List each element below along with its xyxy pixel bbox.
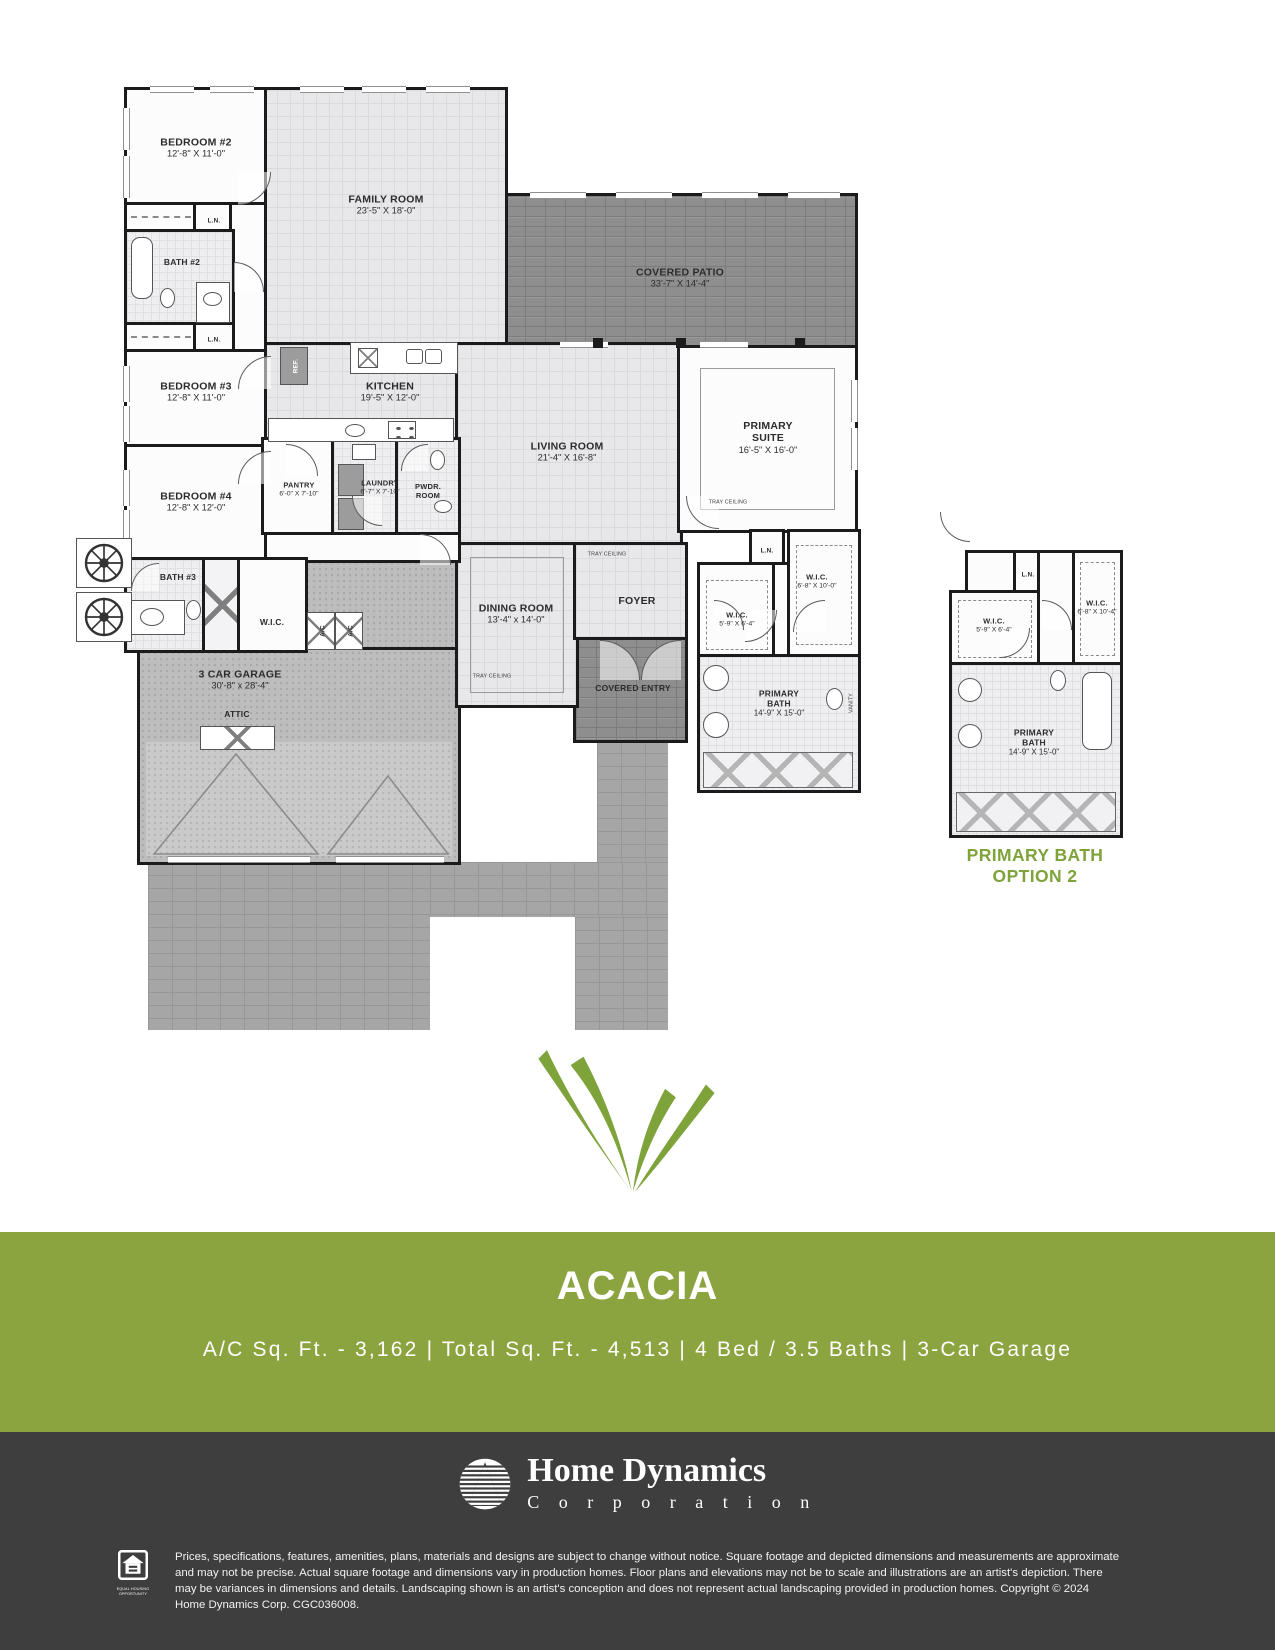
floor-plan: BEDROOM #212'-8" X 11'-0" FAMILY ROOM23'… <box>0 0 1275 1030</box>
ac-condenser-2 <box>76 592 132 642</box>
patio-post <box>795 338 805 348</box>
fan-icon <box>77 539 131 587</box>
linen-label: L.N. <box>208 210 221 229</box>
room-label-foyer: FOYER <box>618 595 655 607</box>
window <box>700 341 748 348</box>
range <box>388 421 416 439</box>
opt2-closet <box>968 553 1016 593</box>
opt2-label-wic-small: W.I.C.5'-9" X 6'-4" <box>976 618 1011 635</box>
laundry-sink <box>352 444 376 460</box>
sink-bath3 <box>140 608 164 626</box>
garage-door-2 <box>336 856 444 863</box>
room-label-bedroom4: BEDROOM #412'-8" X 12'-0" <box>160 490 231 513</box>
room-label-patio: COVERED PATIO33'-7" X 14'-4" <box>636 266 724 289</box>
room-label-pantry: PANTRY6'-0" X 7'-10" <box>279 482 318 499</box>
room-label-attic: ATTIC <box>224 709 249 719</box>
linen-1 <box>127 205 196 232</box>
opt2-tub <box>1082 672 1112 750</box>
toilet-bath3 <box>186 600 201 620</box>
opt2-sink-1 <box>958 678 982 702</box>
tray-ceiling-label: TRAY CEILING <box>588 543 627 562</box>
garage-door-1 <box>168 856 310 863</box>
island-sink-1 <box>406 349 423 364</box>
window <box>123 470 130 506</box>
linen-label: L.N. <box>761 540 774 559</box>
room-label-garage: 3 CAR GARAGE30'-8" x 28'-4" <box>199 668 282 691</box>
driveway <box>148 862 430 1030</box>
room-label-wic-hall: W.I.C. <box>260 617 284 627</box>
room-label-dining: DINING ROOM13'-4" x 14'-0" <box>479 602 554 625</box>
room-label-laundry: LAUNDRY6'-7" X 7'-10" <box>360 480 399 497</box>
room-label-living: LIVING ROOM21'-4" X 16'-8" <box>531 440 604 463</box>
toilet-bath2 <box>160 288 175 308</box>
patio-post <box>593 338 603 348</box>
tray-ceiling-label: TRAY CEILING <box>473 665 512 684</box>
window <box>702 192 758 199</box>
shower-bath3 <box>205 560 240 650</box>
window <box>210 86 254 93</box>
island-prep-box <box>358 348 378 368</box>
window <box>426 86 470 93</box>
brand-name: Home Dynamics <box>527 1454 817 1488</box>
patio-post <box>676 338 686 348</box>
brand-subtitle: C o r p o r a t i o n <box>527 1492 817 1513</box>
opt2-shower <box>956 792 1116 832</box>
window <box>851 428 858 470</box>
window <box>123 156 130 198</box>
sink-powder <box>434 500 452 513</box>
ac-label: A/C <box>340 625 359 636</box>
grass-logo-icon <box>520 1048 720 1193</box>
closet-rod-2 <box>131 336 191 338</box>
brand-lockup: Home Dynamics C o r p o r a t i o n <box>0 1454 1275 1513</box>
room-label-primary-bath: PRIMARY BATH14'-9" X 15'-0" <box>748 688 810 717</box>
walkway-lower <box>575 917 668 1030</box>
window <box>362 86 406 93</box>
option2-caption: PRIMARY BATH OPTION 2 <box>967 845 1104 888</box>
room-label-bedroom2: BEDROOM #212'-8" X 11'-0" <box>160 136 231 159</box>
family-room <box>264 90 505 345</box>
room-label-wic-large: W.I.C.6'-8" X 10'-0" <box>797 574 836 591</box>
fan-icon <box>77 593 131 641</box>
kitchen-sink <box>345 424 365 437</box>
equal-housing-block: EQUAL HOUSING OPPORTUNITY <box>115 1550 151 1596</box>
wic-hall <box>240 560 305 650</box>
attic-pulldown <box>200 726 275 750</box>
window <box>616 192 672 199</box>
window <box>788 192 840 199</box>
window <box>150 86 194 93</box>
room-label-bath2: BATH #2 <box>164 257 200 267</box>
room-label-primary-suite: PRIMARY SUITE16'-5" X 16'-0" <box>732 420 804 456</box>
garage-trusses <box>150 748 450 856</box>
room-label-powder: PWDR. ROOM <box>409 483 447 501</box>
closet-rod-1 <box>131 216 191 218</box>
island-sink-2 <box>425 349 442 364</box>
entry-walkway <box>597 740 668 866</box>
room-label-bath3: BATH #3 <box>160 572 196 582</box>
room-label-wic-small: W.I.C.5'-9" X 6'-4" <box>719 612 754 629</box>
room-label-bedroom3: BEDROOM #312'-8" X 11'-0" <box>160 380 231 403</box>
linen-2 <box>127 325 196 352</box>
door-arc <box>940 512 970 542</box>
tray-ceiling-label: TRAY CEILING <box>709 491 748 510</box>
opt2-label-wic-large: W.I.C.6'-8" X 10'-4" <box>1077 600 1116 617</box>
sink-primary-1 <box>703 665 729 691</box>
room-label-family: FAMILY ROOM23'-5" X 18'-0" <box>348 193 423 216</box>
linen-label: L.N. <box>208 329 221 348</box>
primary-bath-shower <box>703 752 853 788</box>
window <box>300 86 344 93</box>
room-label-kitchen: KITCHEN19'-5" X 12'-0" <box>361 380 420 403</box>
opt2-label-bath: PRIMARY BATH14'-9" X 15'-0" <box>1003 727 1065 756</box>
sink-bath2 <box>203 292 222 306</box>
ac-condenser-1 <box>76 538 132 588</box>
footer: Home Dynamics C o r p o r a t i o n EQUA… <box>0 1432 1275 1650</box>
window <box>123 406 130 442</box>
equal-housing-label: EQUAL HOUSING OPPORTUNITY <box>115 1587 151 1596</box>
bathtub-bath2 <box>131 237 153 299</box>
disclaimer-text: Prices, specifications, features, amenit… <box>175 1550 1120 1614</box>
window <box>123 108 130 150</box>
window <box>123 366 130 402</box>
ac-label: A/C <box>312 625 331 636</box>
linen-label: L.N. <box>1022 564 1035 583</box>
plan-title: ACACIA <box>0 1264 1275 1309</box>
toilet-powder <box>430 450 445 470</box>
walkway-cross <box>430 862 668 917</box>
plan-specs: A/C Sq. Ft. - 3,162 | Total Sq. Ft. - 4,… <box>0 1338 1275 1362</box>
window <box>530 192 586 199</box>
legal-block: EQUAL HOUSING OPPORTUNITY Prices, specif… <box>115 1550 1135 1614</box>
opt2-sink-2 <box>958 724 982 748</box>
suite-hall <box>775 565 790 657</box>
window <box>851 380 858 422</box>
sink-primary-2 <box>703 712 729 738</box>
refrigerator-label: REF. <box>285 359 304 373</box>
opt2-toilet <box>1050 670 1066 691</box>
home-dynamics-logo-icon <box>458 1457 512 1511</box>
vanity-label: VANITY <box>840 693 859 713</box>
title-band: ACACIA A/C Sq. Ft. - 3,162 | Total Sq. F… <box>0 1232 1275 1432</box>
equal-housing-icon <box>118 1550 148 1580</box>
room-label-entry: COVERED ENTRY <box>595 683 671 693</box>
